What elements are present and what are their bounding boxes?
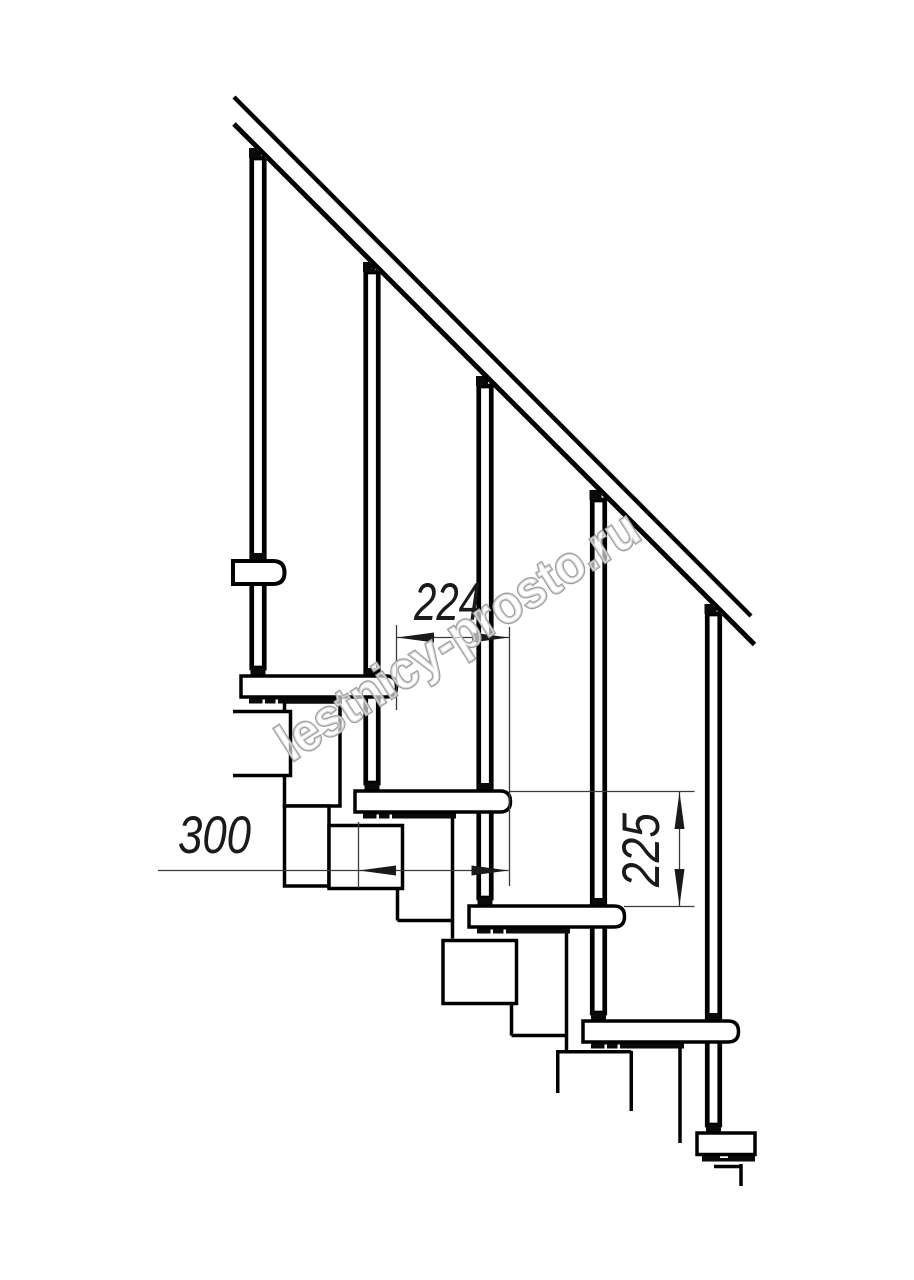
svg-text:300: 300 (178, 806, 251, 865)
svg-text:225: 225 (612, 813, 671, 888)
